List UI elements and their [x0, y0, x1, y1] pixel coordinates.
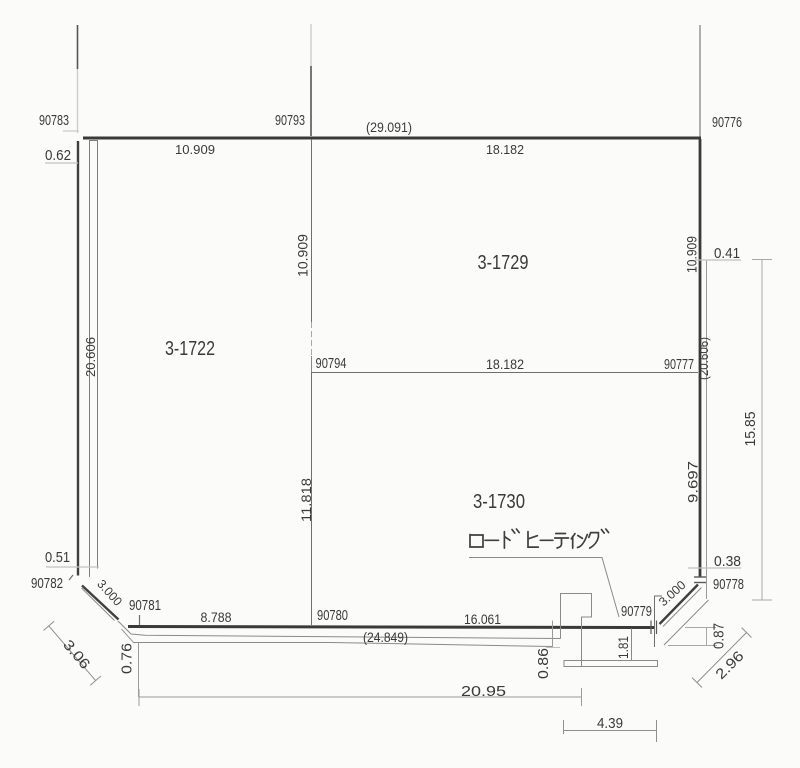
svg-text:90782: 90782 [31, 575, 63, 592]
svg-text:(24.849): (24.849) [363, 629, 408, 645]
svg-text:8.788: 8.788 [201, 609, 232, 625]
svg-text:90794: 90794 [316, 355, 347, 372]
svg-text:1.81: 1.81 [615, 636, 631, 659]
svg-text:0.51: 0.51 [45, 549, 70, 566]
svg-text:90780: 90780 [317, 607, 348, 624]
svg-text:(20.606): (20.606) [696, 337, 711, 380]
svg-text:20.95: 20.95 [461, 683, 506, 700]
svg-text:90793: 90793 [275, 112, 305, 129]
svg-text:0.62: 0.62 [45, 147, 71, 164]
svg-text:18.182: 18.182 [486, 356, 524, 372]
svg-text:90779: 90779 [621, 603, 652, 620]
svg-text:(29.091): (29.091) [366, 119, 412, 135]
svg-text:3-1730: 3-1730 [473, 491, 525, 513]
svg-text:90777: 90777 [664, 356, 694, 373]
svg-text:4.39: 4.39 [597, 715, 623, 732]
svg-text:3.000: 3.000 [656, 578, 688, 609]
svg-text:2.96: 2.96 [713, 648, 748, 683]
svg-text:3.000: 3.000 [94, 577, 125, 609]
svg-text:0.38: 0.38 [714, 553, 741, 570]
svg-text:16.061: 16.061 [464, 611, 501, 627]
svg-text:10.909: 10.909 [175, 142, 215, 157]
svg-text:90783: 90783 [39, 112, 69, 129]
svg-text:15.85: 15.85 [742, 412, 759, 447]
svg-text:0.41: 0.41 [714, 245, 740, 262]
svg-text:3.06: 3.06 [59, 637, 92, 673]
svg-text:0.86: 0.86 [535, 648, 552, 679]
svg-text:90778: 90778 [713, 576, 744, 593]
svg-text:9.697: 9.697 [685, 461, 701, 503]
svg-text:10.909: 10.909 [684, 236, 700, 273]
svg-text:3-1729: 3-1729 [478, 252, 529, 274]
svg-text:20.606: 20.606 [83, 337, 98, 377]
svg-text:18.182: 18.182 [486, 142, 524, 157]
svg-text:10.909: 10.909 [295, 234, 311, 277]
svg-text:11.818: 11.818 [298, 478, 314, 522]
svg-text:90776: 90776 [712, 114, 742, 131]
svg-text:0.87: 0.87 [711, 623, 728, 649]
svg-text:90781: 90781 [129, 597, 161, 614]
svg-text:0.76: 0.76 [119, 643, 136, 674]
svg-text:3-1722: 3-1722 [165, 338, 215, 360]
